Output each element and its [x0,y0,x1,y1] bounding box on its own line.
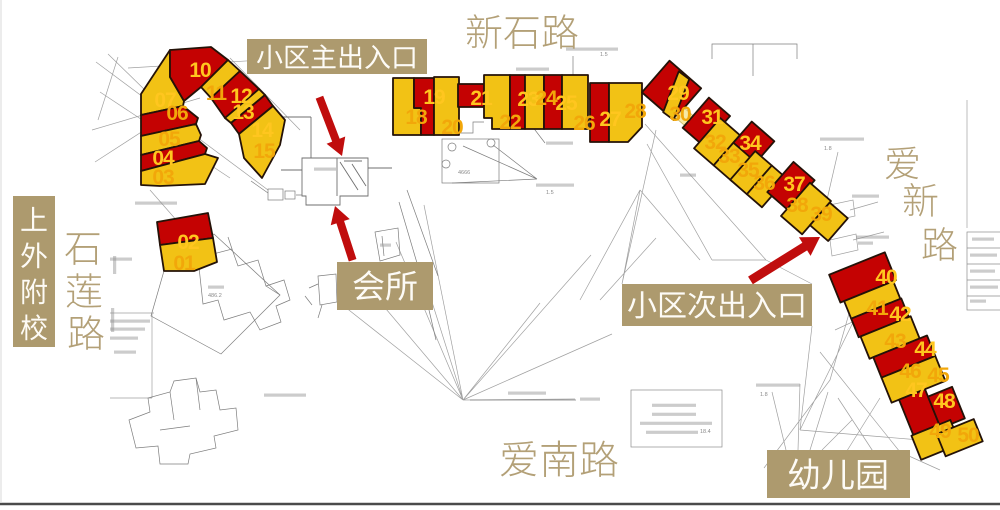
svg-text:41: 41 [866,297,889,320]
svg-text:38: 38 [786,194,809,217]
svg-text:18: 18 [405,106,428,129]
svg-text:18.4: 18.4 [700,429,711,435]
svg-text:42: 42 [889,303,911,326]
svg-text:02: 02 [177,231,199,254]
svg-text:26: 26 [573,112,595,135]
svg-text:03: 03 [152,166,174,189]
svg-text:49: 49 [929,420,951,443]
svg-text:31: 31 [701,106,724,129]
svg-text:22: 22 [499,111,521,134]
svg-text:50: 50 [957,424,979,447]
svg-text:30: 30 [669,103,691,126]
svg-text:11: 11 [206,82,228,105]
svg-text:37: 37 [783,173,805,196]
svg-text:1.5: 1.5 [600,52,608,58]
svg-text:01: 01 [173,252,196,275]
svg-text:47: 47 [905,379,927,402]
svg-text:10: 10 [189,59,211,82]
svg-text:14: 14 [251,119,274,142]
svg-text:06: 06 [166,102,188,125]
svg-text:34: 34 [739,132,762,155]
svg-text:29: 29 [667,82,689,105]
svg-text:40: 40 [875,266,897,289]
svg-text:20: 20 [441,116,463,139]
svg-text:43: 43 [884,330,906,353]
svg-text:15: 15 [253,140,276,163]
svg-text:44: 44 [914,338,937,361]
svg-text:48: 48 [933,390,956,413]
svg-text:45: 45 [927,364,950,387]
svg-text:19: 19 [423,86,445,109]
svg-text:1.5: 1.5 [546,190,554,196]
svg-text:36: 36 [753,172,775,195]
svg-text:21: 21 [470,87,493,110]
svg-text:28: 28 [624,100,647,123]
svg-text:27: 27 [599,108,621,131]
svg-text:486.2: 486.2 [208,293,222,299]
svg-text:39: 39 [810,203,832,226]
svg-text:1.8: 1.8 [760,392,768,398]
svg-text:4666: 4666 [458,170,470,176]
svg-text:1.8: 1.8 [824,146,832,152]
